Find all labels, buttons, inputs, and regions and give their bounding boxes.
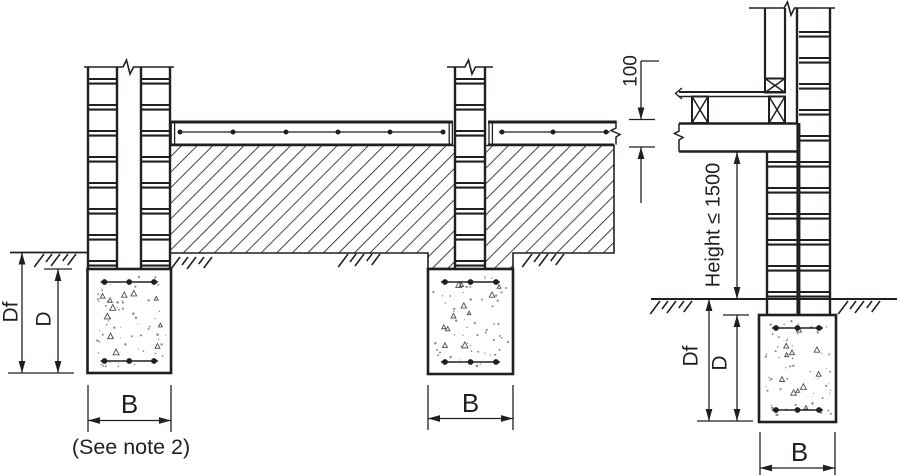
dimension-arrowhead bbox=[734, 315, 741, 327]
stipple-dot bbox=[118, 362, 119, 363]
stipple-dot bbox=[490, 354, 491, 355]
stipple-dot bbox=[474, 322, 476, 324]
stipple-dot bbox=[143, 350, 145, 352]
stipple-dot bbox=[467, 343, 468, 344]
floor-slab-left bbox=[170, 121, 453, 145]
ground-tick bbox=[182, 257, 188, 265]
stipple-dot bbox=[159, 311, 161, 313]
dimension-arrowhead bbox=[428, 415, 440, 422]
stipple-dot bbox=[501, 291, 503, 293]
stipple-dot bbox=[148, 328, 150, 330]
stipple-dot bbox=[99, 330, 100, 331]
stipple-dot bbox=[766, 386, 767, 387]
collar-joint bbox=[796, 123, 800, 315]
dim-label-d-right: D bbox=[708, 355, 731, 370]
rebar-dot bbox=[468, 359, 474, 365]
dim-label-slab-thickness: 100 bbox=[621, 55, 642, 87]
hardcore-fill-right bbox=[485, 146, 614, 269]
stipple-dot bbox=[100, 363, 102, 365]
wall-break-line bbox=[84, 60, 174, 74]
mesh-dot bbox=[441, 130, 446, 135]
ground-tick bbox=[372, 254, 380, 265]
stipple-dot bbox=[829, 371, 831, 373]
rebar-dot bbox=[126, 358, 132, 364]
ground-tick bbox=[46, 254, 52, 262]
stipple-dot bbox=[828, 354, 829, 355]
note-reference-text: (See note 2) bbox=[72, 435, 190, 459]
dimension-arrowhead bbox=[55, 361, 62, 373]
stipple-dot bbox=[116, 301, 119, 304]
stipple-dot bbox=[826, 368, 827, 369]
ground-tick bbox=[679, 301, 684, 308]
stipple-dot bbox=[432, 291, 434, 293]
rebar-dot bbox=[816, 407, 822, 413]
slab-break-line bbox=[611, 121, 620, 145]
rebar-dot bbox=[493, 359, 499, 365]
ground-tick bbox=[534, 254, 540, 262]
stipple-dot bbox=[813, 393, 814, 394]
ground-tick bbox=[662, 301, 668, 309]
dim-label-df-right: Df bbox=[679, 345, 702, 366]
timber-sections bbox=[692, 79, 785, 124]
stipple-dot bbox=[97, 298, 99, 300]
rebar-dot bbox=[126, 279, 132, 285]
ground-tick bbox=[51, 254, 60, 266]
mesh-dot bbox=[336, 130, 341, 135]
dimension-arrowhead bbox=[88, 417, 100, 424]
stipple-dot bbox=[96, 339, 98, 341]
ground-tick bbox=[684, 301, 692, 312]
stipple-dot bbox=[156, 333, 159, 336]
stipple-dot bbox=[492, 305, 494, 307]
dimension-arrowhead bbox=[638, 147, 645, 159]
dimension-arrowhead bbox=[501, 415, 513, 422]
ground-tick bbox=[187, 257, 196, 269]
stipple-dot bbox=[501, 337, 503, 339]
ground-tick bbox=[850, 301, 856, 309]
stipple-dot bbox=[98, 301, 99, 302]
dim-label-df-left: Df bbox=[0, 301, 22, 322]
stipple-dot bbox=[113, 327, 115, 329]
stipple-dot bbox=[138, 276, 140, 278]
dim-label-d-left: D bbox=[32, 311, 55, 326]
dimension-arrowhead bbox=[19, 253, 26, 265]
stipple-dot bbox=[120, 337, 121, 338]
stipple-dot bbox=[434, 342, 437, 345]
stipple-dot bbox=[463, 292, 464, 293]
edge-beam bbox=[675, 124, 798, 152]
mesh-dot bbox=[604, 130, 609, 135]
stipple-dot bbox=[154, 318, 155, 319]
dim-label-b-left: B bbox=[121, 389, 138, 419]
stipple-dot bbox=[493, 339, 495, 341]
stipple-dot bbox=[830, 390, 831, 391]
stipple-dot bbox=[817, 331, 819, 333]
stipple-dot bbox=[771, 404, 772, 405]
stipple-dot bbox=[105, 365, 107, 367]
stipple-dot bbox=[453, 308, 455, 310]
stipple-dot bbox=[149, 325, 151, 327]
rebar-dot bbox=[795, 407, 801, 413]
rebar-dot bbox=[442, 279, 448, 285]
stipple-dot bbox=[105, 305, 107, 307]
stipple-dot bbox=[469, 298, 472, 301]
stipple-dot bbox=[792, 357, 794, 359]
rebar-dot bbox=[795, 325, 801, 331]
foundation-detail-diagram: Df D B (See note 2) B 100 Height ≤ 1500 … bbox=[0, 0, 898, 475]
ground-tick bbox=[872, 301, 880, 312]
dimension-arrowhead bbox=[55, 269, 62, 281]
stipple-dot bbox=[99, 341, 101, 343]
stipple-dot bbox=[770, 378, 772, 380]
ground-tick bbox=[170, 257, 180, 270]
stipple-dot bbox=[476, 365, 479, 368]
rebar-dot bbox=[773, 325, 779, 331]
stipple-dot bbox=[476, 334, 478, 336]
stipple-dot bbox=[775, 414, 777, 416]
stipple-dot bbox=[789, 365, 791, 367]
dimension-arrowhead bbox=[638, 108, 645, 120]
stipple-dot bbox=[102, 334, 104, 336]
stipple-dot bbox=[160, 343, 162, 345]
rebar-dot bbox=[773, 407, 779, 413]
stipple-dot bbox=[493, 323, 495, 325]
stipple-dot bbox=[481, 299, 483, 301]
cavity-wall bbox=[84, 60, 174, 269]
stipple-dot bbox=[131, 335, 133, 337]
dimension-arrowhead bbox=[760, 465, 772, 472]
ground-tick bbox=[68, 254, 76, 265]
ground-tick bbox=[34, 254, 44, 267]
dim-label-b-right: B bbox=[791, 437, 808, 467]
rebar-dot bbox=[151, 358, 157, 364]
stipple-dot bbox=[466, 327, 468, 329]
stipple-dot bbox=[792, 345, 793, 346]
stipple-dot bbox=[790, 320, 792, 322]
stipple-dot bbox=[507, 341, 509, 343]
dimension-arrowhead bbox=[159, 417, 171, 424]
stipple-dot bbox=[486, 329, 488, 331]
rebar-dot bbox=[102, 279, 108, 285]
stipple-dot bbox=[118, 309, 120, 311]
stipple-dot bbox=[137, 323, 138, 324]
stipple-dot bbox=[768, 377, 770, 379]
stipple-dot bbox=[798, 324, 799, 325]
mesh-dot bbox=[178, 130, 183, 135]
stipple-dot bbox=[97, 293, 99, 295]
stipple-dot bbox=[821, 353, 822, 354]
stipple-dot bbox=[162, 355, 164, 357]
stipple-dot bbox=[484, 352, 485, 353]
stipple-dot bbox=[122, 308, 124, 310]
dimension-arrowhead bbox=[706, 409, 713, 421]
stipple-dot bbox=[442, 295, 443, 296]
ground-tick bbox=[551, 254, 556, 261]
ground-tick bbox=[650, 301, 660, 314]
stipple-dot bbox=[449, 356, 452, 359]
dim-label-b-middle: B bbox=[462, 388, 479, 418]
stipple-dot bbox=[436, 349, 438, 351]
stipple-dot bbox=[469, 345, 471, 347]
wall-collar-joint bbox=[796, 123, 800, 315]
stipple-dot bbox=[471, 350, 473, 352]
ground-tick bbox=[539, 254, 548, 266]
stipple-dot bbox=[106, 324, 108, 326]
stipple-dot bbox=[772, 333, 774, 335]
ground-tick bbox=[350, 254, 356, 262]
ground-tick bbox=[338, 254, 348, 267]
stipple-dot bbox=[765, 355, 767, 357]
stipple-dot bbox=[497, 300, 499, 302]
stipple-dot bbox=[766, 390, 768, 392]
mesh-dot bbox=[231, 130, 236, 135]
stipple-dot bbox=[122, 300, 123, 301]
stipple-dot bbox=[469, 286, 471, 288]
wall-top-break-line bbox=[749, 2, 835, 15]
stipple-dot bbox=[439, 351, 441, 353]
stipple-dot bbox=[775, 350, 777, 352]
stipple-dot bbox=[158, 284, 160, 286]
stipple-dot bbox=[140, 334, 142, 336]
stipple-dot bbox=[134, 364, 136, 366]
rebar-dot bbox=[151, 279, 157, 285]
dimension-arrowhead bbox=[734, 287, 741, 299]
stipple-dot bbox=[778, 336, 780, 338]
stipple-dot bbox=[480, 364, 481, 365]
stipple-dot bbox=[812, 403, 814, 405]
stipple-dot bbox=[786, 340, 788, 342]
stipple-dot bbox=[102, 365, 104, 367]
mesh-dot bbox=[284, 130, 289, 135]
stipple-dot bbox=[770, 323, 772, 325]
stipple-dot bbox=[785, 367, 786, 368]
ground-tick bbox=[355, 254, 364, 266]
stipple-dot bbox=[453, 311, 455, 313]
hardcore-fill-left bbox=[170, 146, 455, 269]
stipple-dot bbox=[497, 323, 499, 325]
dimension-arrowhead bbox=[706, 299, 713, 311]
stipple-dot bbox=[477, 351, 479, 353]
ground-tick bbox=[522, 254, 532, 267]
stipple-dot bbox=[771, 407, 774, 410]
footing bbox=[88, 269, 172, 373]
stipple-dot bbox=[484, 276, 485, 277]
rebar-dot bbox=[442, 359, 448, 365]
ground-tick bbox=[838, 301, 848, 314]
stipple-dot bbox=[829, 393, 830, 394]
rebar-dot bbox=[816, 325, 822, 331]
stipple-dot bbox=[110, 284, 111, 285]
stipple-dot bbox=[825, 385, 827, 387]
stipple-dot bbox=[499, 335, 501, 337]
stipple-dot bbox=[124, 343, 126, 345]
rebar-dot bbox=[102, 358, 108, 364]
stipple-dot bbox=[120, 327, 121, 328]
stipple-dot bbox=[786, 378, 788, 380]
stipple-dot bbox=[98, 352, 100, 354]
diagram-canvas: Df D B (See note 2) B 100 Height ≤ 1500 … bbox=[0, 0, 898, 475]
stipple-dot bbox=[147, 299, 149, 301]
stipple-dot bbox=[485, 331, 487, 333]
stipple-dot bbox=[818, 378, 819, 379]
stipple-dot bbox=[792, 365, 794, 367]
stipple-dot bbox=[498, 349, 500, 351]
beam-break-line bbox=[675, 124, 684, 152]
dimension-arrowhead bbox=[734, 152, 741, 164]
stipple-dot bbox=[135, 317, 138, 320]
stipple-dot bbox=[445, 302, 447, 304]
ground-tick bbox=[199, 257, 204, 264]
stipple-dot bbox=[484, 277, 486, 279]
stipple-dot bbox=[101, 289, 103, 291]
stipple-dot bbox=[822, 397, 824, 399]
stipple-dot bbox=[132, 312, 135, 315]
stipple-dot bbox=[462, 335, 463, 336]
stipple-dot bbox=[134, 286, 136, 288]
footing-outline bbox=[759, 315, 836, 422]
ground-tick bbox=[867, 301, 872, 308]
ground-tick bbox=[667, 301, 676, 313]
rebar-dot bbox=[468, 279, 474, 285]
stipple-dot bbox=[122, 301, 124, 303]
dim-label-height-limit: Height ≤ 1500 bbox=[703, 163, 725, 287]
stipple-dot bbox=[465, 286, 467, 288]
stipple-dot bbox=[108, 320, 109, 321]
stipple-dot bbox=[437, 354, 439, 356]
stipple-dot bbox=[154, 276, 156, 278]
stipple-dot bbox=[138, 348, 139, 349]
stipple-dot bbox=[505, 287, 507, 289]
right-elevation bbox=[651, 2, 897, 315]
stipple-dot bbox=[797, 333, 799, 335]
stipple-dot bbox=[449, 295, 451, 297]
stipple-dot bbox=[494, 354, 496, 356]
dimension-arrowhead bbox=[734, 409, 741, 421]
stipple-dot bbox=[118, 366, 120, 368]
ground-tick bbox=[204, 257, 212, 268]
stipple-dot bbox=[460, 345, 462, 347]
deck-break-line bbox=[676, 88, 683, 99]
footing bbox=[428, 269, 513, 374]
stud-leaf bbox=[765, 8, 785, 79]
stipple-dot bbox=[810, 371, 811, 372]
left-elevation bbox=[10, 60, 620, 269]
ground-tick bbox=[367, 254, 372, 261]
stipple-dot bbox=[830, 413, 832, 415]
stipple-dot bbox=[777, 346, 779, 348]
stipple-dot bbox=[794, 404, 796, 406]
stipple-dot bbox=[826, 326, 827, 327]
stipple-dot bbox=[766, 353, 768, 355]
stipple-dot bbox=[769, 380, 770, 381]
dimension-arrowhead bbox=[823, 465, 835, 472]
ground-tick bbox=[556, 254, 564, 265]
stipple-dot bbox=[828, 383, 829, 384]
stipple-dot bbox=[158, 338, 159, 339]
rebar-dot bbox=[493, 279, 499, 285]
stipple-dot bbox=[495, 294, 497, 296]
ground-tick bbox=[855, 301, 864, 313]
stipple-dot bbox=[779, 388, 781, 390]
stipple-dot bbox=[787, 339, 788, 340]
mesh-dot bbox=[500, 130, 505, 135]
stipple-dot bbox=[454, 334, 455, 335]
stipple-dot bbox=[460, 359, 461, 360]
dimension-arrowhead bbox=[19, 361, 26, 373]
stipple-dot bbox=[455, 320, 457, 322]
ground-tick bbox=[63, 254, 68, 261]
stipple-dot bbox=[165, 335, 166, 336]
stipple-dot bbox=[783, 324, 785, 326]
stipple-dot bbox=[155, 353, 157, 355]
mesh-dot bbox=[551, 130, 556, 135]
stipple-dot bbox=[464, 319, 465, 320]
footing bbox=[759, 315, 836, 422]
stipple-dot bbox=[778, 357, 780, 359]
stipple-dot bbox=[117, 307, 118, 308]
stipple-dot bbox=[827, 410, 829, 412]
mesh-dot bbox=[388, 130, 393, 135]
internal-wall bbox=[447, 60, 493, 269]
stipple-dot bbox=[491, 277, 493, 279]
